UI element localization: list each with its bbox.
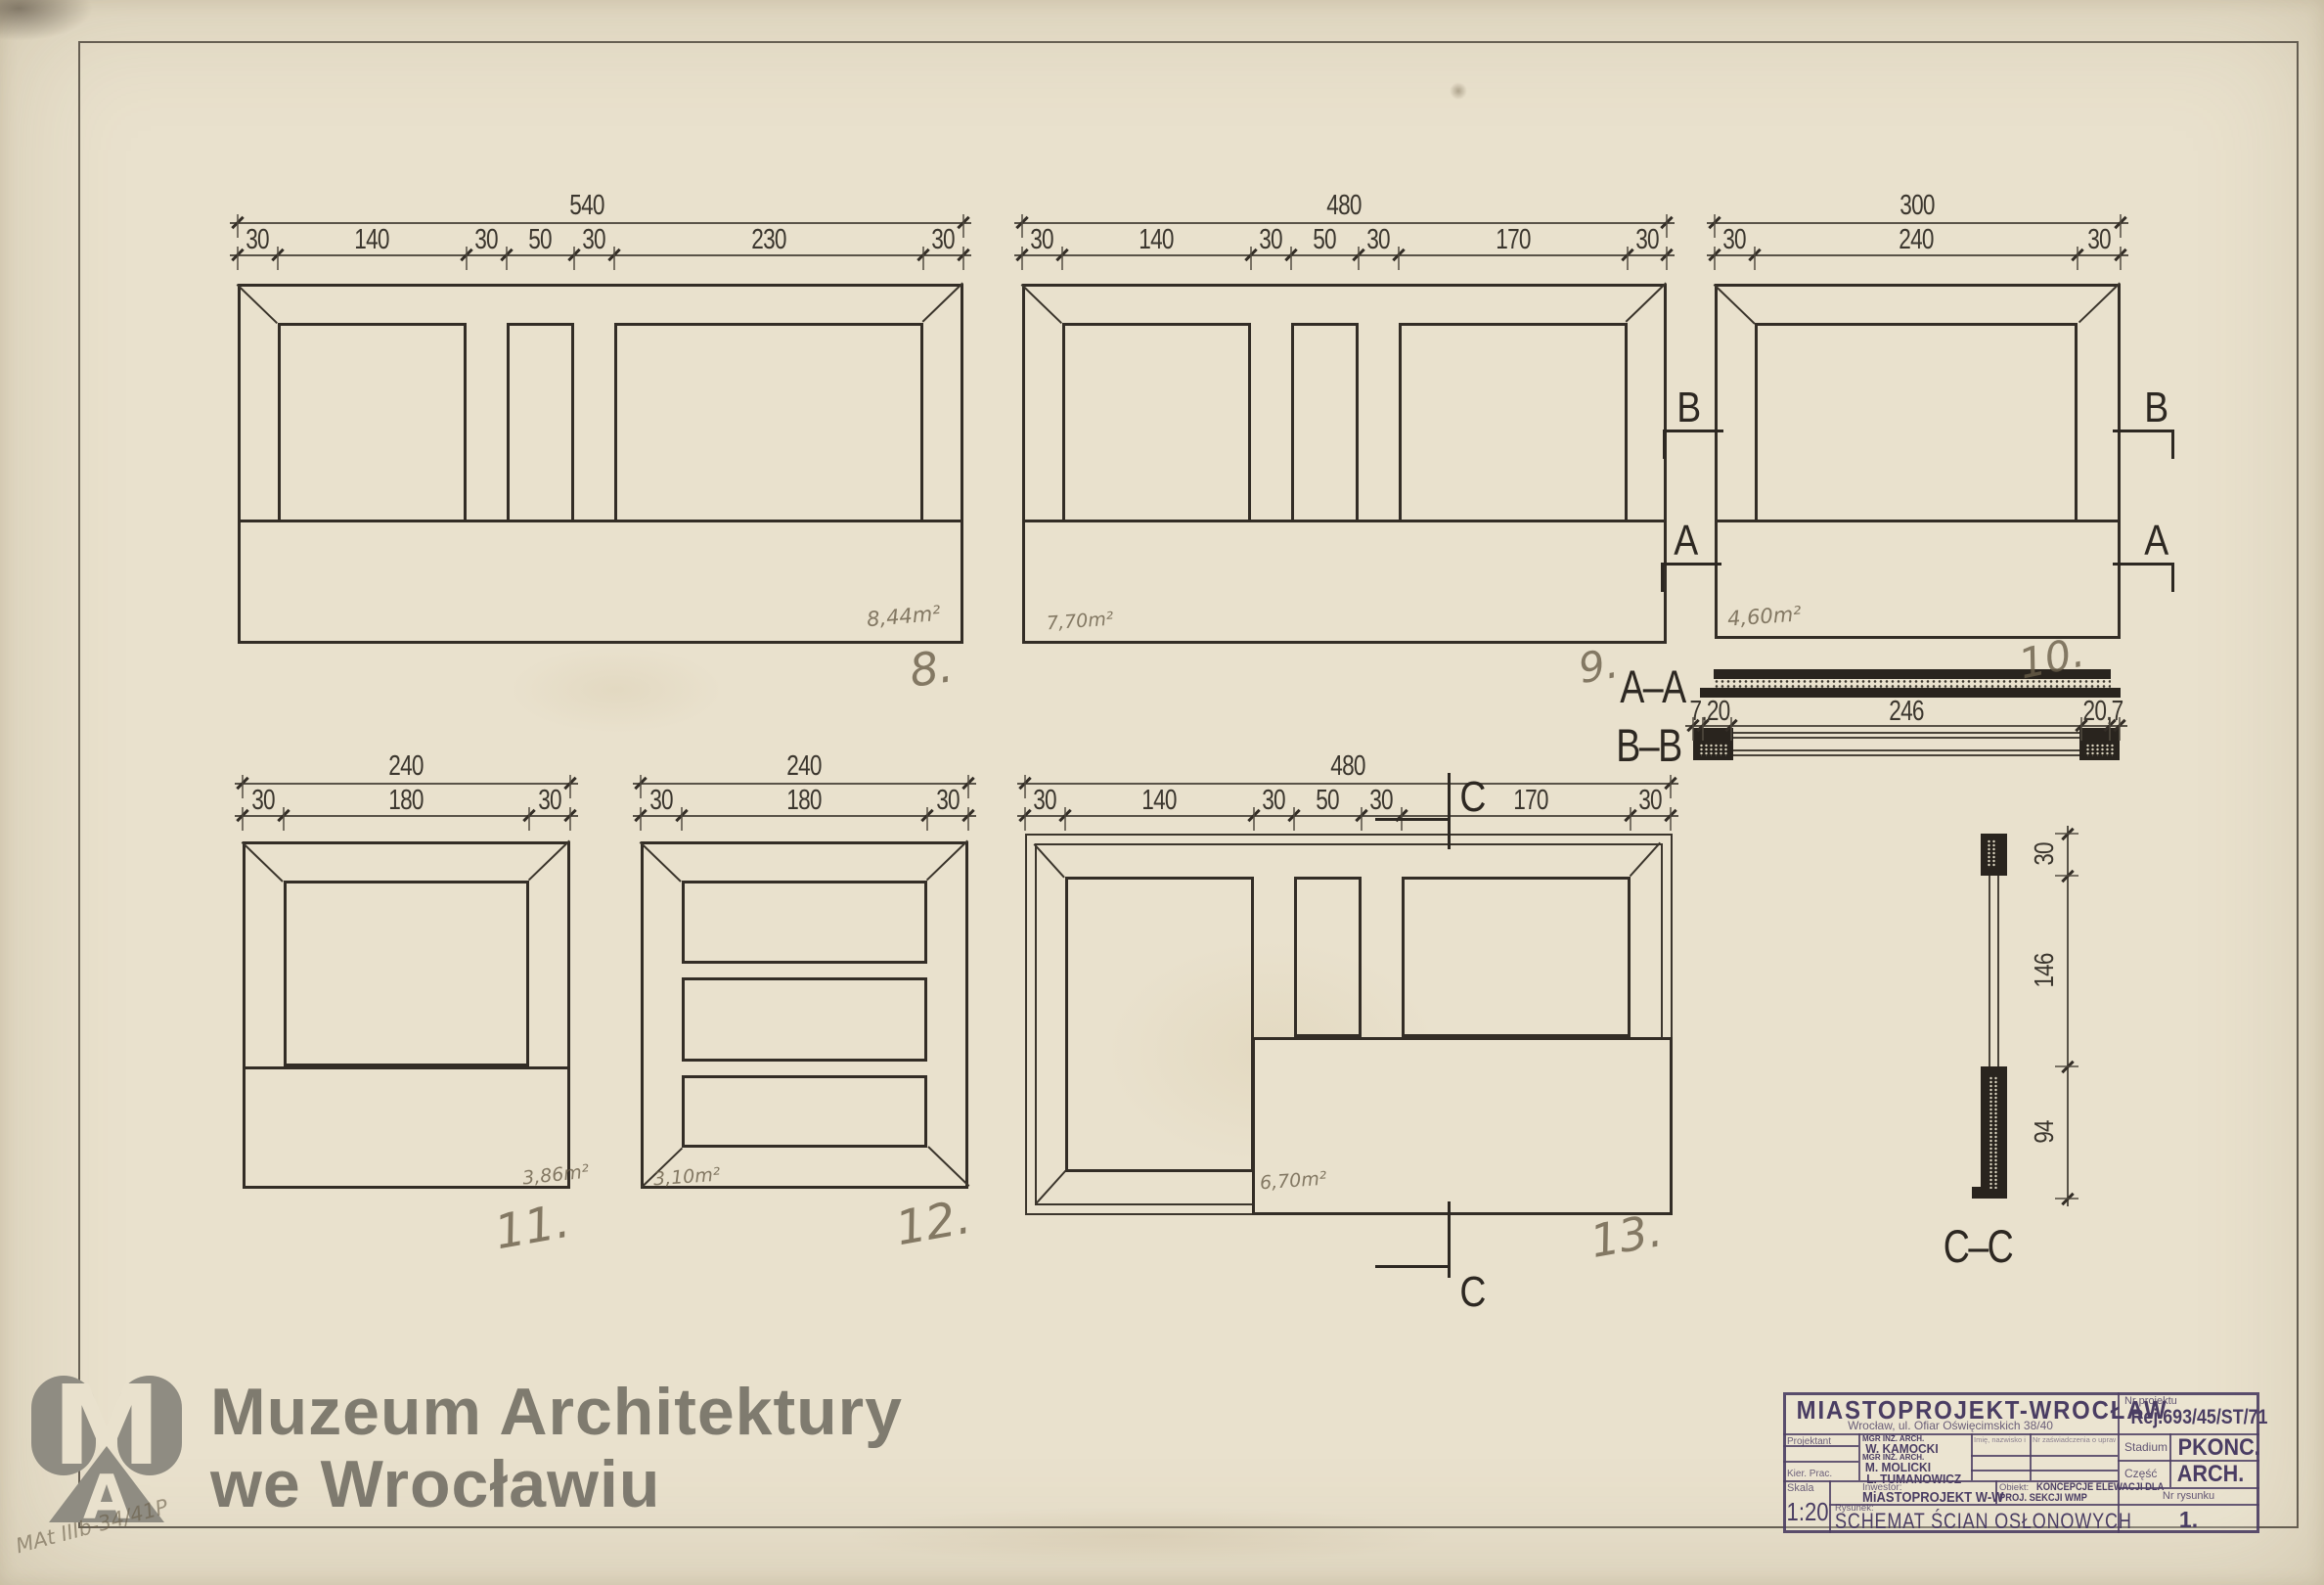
dim-label: 230	[723, 224, 815, 256]
elevation-9-window-3	[1399, 323, 1628, 522]
dim-label: 20,7	[2057, 696, 2149, 728]
section-mark-tick	[2171, 430, 2174, 459]
elevation-8-window-1	[278, 323, 467, 522]
dim-label: 94	[2029, 1085, 2060, 1179]
tb-line	[1971, 1470, 2118, 1472]
elevation-13-window-3	[1402, 877, 1631, 1037]
section-label: C–C	[1944, 1219, 2012, 1273]
section-mark-line	[1661, 563, 1721, 566]
cc-top-block-fill	[1987, 839, 1996, 867]
drawing-sheet: MIASTOPROJEKT-WROCŁAW Wrocław, ul. Ofiar…	[0, 0, 2324, 1585]
tb-col-header-1: Imię, nazwisko i nr upr.	[1974, 1435, 2028, 1444]
elevation-8-window-2	[507, 323, 574, 522]
section-mark-tick	[1448, 773, 1451, 849]
elevation-11-window	[284, 881, 529, 1066]
section-mark-tick	[1663, 430, 1666, 459]
tb-projektant-label: Projektant	[1787, 1436, 1831, 1447]
dim-label: 30	[548, 224, 640, 256]
dim-label: 140	[1113, 785, 1205, 817]
dim-label: 30	[615, 785, 707, 817]
dim-label: 30	[2029, 807, 2060, 901]
section-label: A–A	[1620, 659, 1684, 713]
tb-skala: 1:20	[1787, 1497, 1826, 1527]
dim-label: 240	[1870, 224, 1962, 256]
tb-address: Wrocław, ul. Ofiar Oświęcimskich 38/40	[1783, 1419, 2118, 1432]
cc-foot	[1972, 1187, 1983, 1199]
watermark-line1: Muzeum Architektury	[210, 1374, 903, 1450]
section-mark-line	[2113, 563, 2173, 566]
dim-label: 30	[211, 224, 303, 256]
elevation-8-spandrel	[238, 520, 963, 644]
elevation-9-window-2	[1291, 323, 1359, 522]
tb-line	[2169, 1433, 2171, 1487]
dim-label: 480	[1298, 190, 1390, 222]
tb-col-header-2: Nr zaświadczenia o uprawn.	[2033, 1435, 2116, 1444]
elevation-13-window-1	[1065, 877, 1254, 1172]
section-mark-letter: B	[1676, 384, 1701, 432]
dim-label: 30	[1601, 224, 1693, 256]
elevation-8-window-3	[614, 323, 923, 522]
dim-label: 480	[1302, 750, 1394, 783]
section-mark-letter: C	[1459, 1268, 1486, 1317]
dim-label: 180	[360, 785, 452, 817]
dim-label: 170	[1467, 224, 1559, 256]
cc-glazing-line	[1997, 876, 1999, 1066]
section-mark-letter: B	[2144, 384, 2168, 432]
section-mark-line	[1375, 1265, 1450, 1268]
tb-inwestor: MiASTOPROJEKT W-W	[1862, 1490, 2004, 1506]
tb-line	[2030, 1433, 2032, 1480]
dim-label: 30	[1332, 224, 1424, 256]
elevation-9-spandrel	[1022, 520, 1667, 644]
bb-glazing-line	[1703, 754, 2120, 756]
tb-stadium: PKONC.	[2178, 1434, 2260, 1462]
bb-glazing-line	[1703, 737, 2120, 739]
dim-line	[2067, 826, 2069, 1206]
dim-label: 170	[1485, 785, 1577, 817]
dim-label: 30	[902, 785, 994, 817]
dim-label: 30	[217, 785, 309, 817]
dim-label: 30	[2053, 224, 2145, 256]
section-mark-line	[1663, 430, 1723, 432]
section-mark-letter: A	[2144, 517, 2168, 566]
dim-label: 30	[504, 785, 596, 817]
cc-bottom-block-fill	[1989, 1076, 1998, 1189]
elevation-12-panel-3	[682, 1075, 927, 1148]
section-mark-letter: A	[1674, 517, 1698, 566]
tb-stadium-label: Stadium	[2124, 1440, 2168, 1454]
elevation-10-window	[1755, 323, 2078, 522]
dim-label: 30	[1604, 785, 1696, 817]
tb-line	[1829, 1480, 1831, 1533]
pencil-note: 8.	[906, 639, 956, 698]
elevation-12-panel-1	[682, 881, 927, 964]
bb-glazing-line	[1703, 749, 2120, 751]
tb-line	[1783, 1461, 1858, 1463]
pencil-note: 9.	[1575, 639, 1622, 693]
section-label: B–B	[1616, 718, 1680, 772]
dim-label: 30	[1688, 224, 1780, 256]
cc-glazing-line	[1989, 876, 1990, 1066]
dim-label: 140	[326, 224, 418, 256]
tb-czesc-label: Część	[2124, 1467, 2157, 1480]
tb-skala-label: Skala	[1787, 1482, 1814, 1494]
section-mark-tick	[1448, 1201, 1451, 1278]
tb-nr-projektu: Rej.693/45/ST/71	[2131, 1406, 2248, 1429]
tb-line	[1971, 1433, 1973, 1480]
dim-label: 30	[897, 224, 989, 256]
tb-czesc: ARCH.	[2177, 1461, 2244, 1488]
section-mark-line	[1375, 818, 1450, 821]
dim-label: 30	[999, 785, 1091, 817]
dim-label: 180	[758, 785, 850, 817]
elevation-12-panel-2	[682, 977, 927, 1062]
section-mark-letter: C	[1459, 773, 1486, 822]
bb-end-block-left-fill	[1699, 744, 1728, 756]
dim-label: 300	[1871, 190, 1963, 222]
tb-kier-prac-label: Kier. Prac.	[1787, 1469, 1832, 1479]
dim-label: 140	[1110, 224, 1202, 256]
tb-obiekt-line2: PROJ. SEKCJI WMP	[1999, 1492, 2087, 1504]
stain	[0, 0, 93, 41]
tb-rysunek: SCHEMAT ŚCIAN OSŁONOWYCH	[1835, 1509, 2132, 1534]
tb-nr-rysunku: 1.	[2118, 1507, 2259, 1533]
dim-extension	[2055, 1065, 2078, 1067]
dim-extension	[2055, 1198, 2078, 1200]
section-mark-tick	[2171, 563, 2174, 592]
tb-line	[1858, 1433, 1860, 1480]
dim-label: 30	[996, 224, 1088, 256]
dim-label: 540	[541, 190, 633, 222]
watermark-line2: we Wrocławiu	[210, 1446, 660, 1522]
elevation-9-window-1	[1062, 323, 1251, 522]
tb-line	[1971, 1455, 2118, 1457]
dim-label: 246	[1860, 696, 1952, 728]
dim-label: 240	[758, 750, 850, 783]
dim-label: 146	[2029, 924, 2060, 1018]
section-mark-tick	[1661, 563, 1664, 592]
bb-end-block-right-fill	[2085, 744, 2115, 756]
elevation-13-window-2	[1294, 877, 1362, 1037]
dim-label: 30	[1335, 785, 1427, 817]
dim-label: 240	[360, 750, 452, 783]
bb-glazing-line	[1703, 732, 2120, 734]
section-mark-line	[2113, 430, 2173, 432]
tb-line	[2118, 1504, 2259, 1506]
